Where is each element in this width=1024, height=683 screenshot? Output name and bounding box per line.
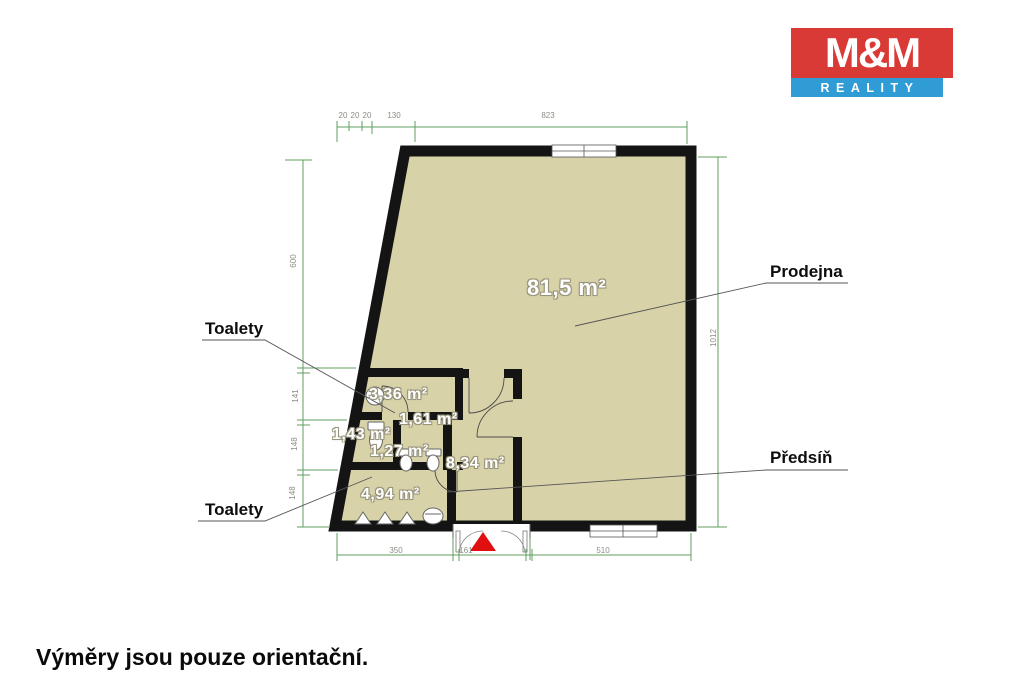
sink-icon — [423, 508, 443, 524]
room-label-predsin: 8,34 m² — [446, 455, 505, 473]
wall-toilets-top — [366, 368, 463, 377]
entrance-opening — [453, 524, 530, 538]
dim-left-600: 600 — [289, 246, 299, 276]
dim-top-130: 130 — [380, 111, 408, 121]
callout-predsin: Předsíň — [770, 448, 832, 468]
wall-wc-mid-left — [352, 412, 382, 420]
room-label-wc-143: 1,43 m² — [332, 426, 391, 444]
dim-left-141: 141 — [291, 381, 301, 411]
room-label-chodba: 4,94 m² — [361, 486, 420, 504]
door-leaf-right — [523, 531, 527, 552]
dim-bottom-510: 510 — [589, 546, 617, 556]
dim-bottom-350: 350 — [382, 546, 410, 556]
dim-left-148b: 148 — [288, 478, 298, 508]
wall-vert-stub — [455, 368, 463, 412]
room-label-wc-161: 1,61 m² — [399, 411, 458, 429]
dim-right-1012: 1012 — [709, 323, 719, 353]
logo-reality: REALITY — [791, 78, 943, 97]
disclaimer-text: Výměry jsou pouze orientační. — [36, 644, 368, 671]
callout-toalety-lower: Toalety — [205, 500, 263, 520]
wall-hall-right-lower — [513, 437, 522, 531]
dim-bottom-161: 161 — [452, 546, 480, 556]
dim-left-148a: 148 — [290, 429, 300, 459]
dim-top-823: 823 — [534, 111, 562, 121]
callout-toalety-upper: Toalety — [205, 319, 263, 339]
logo-mm-text: M&M — [825, 29, 919, 77]
wall-corridor-right — [447, 470, 456, 531]
floor-plan-drawing — [0, 0, 1024, 683]
logo-mm: M&M — [791, 28, 953, 78]
callout-prodejna: Prodejna — [770, 262, 843, 282]
room-label-wc-127: 1,27 m² — [370, 443, 429, 461]
room-label-prodejna: 81,5 m² — [527, 275, 606, 301]
logo-reality-text: REALITY — [815, 81, 920, 95]
dim-top-20c: 20 — [360, 111, 374, 121]
wall-corridor-top-left — [349, 462, 435, 470]
wall-hall-right-upper — [513, 369, 522, 399]
wall-hall-top-left — [463, 369, 469, 378]
room-label-wc-336: 3,36 m² — [369, 386, 428, 404]
floor-plan-page: 81,5 m² 3,36 m² 1,61 m² 1,43 m² 1,27 m² … — [0, 0, 1024, 683]
